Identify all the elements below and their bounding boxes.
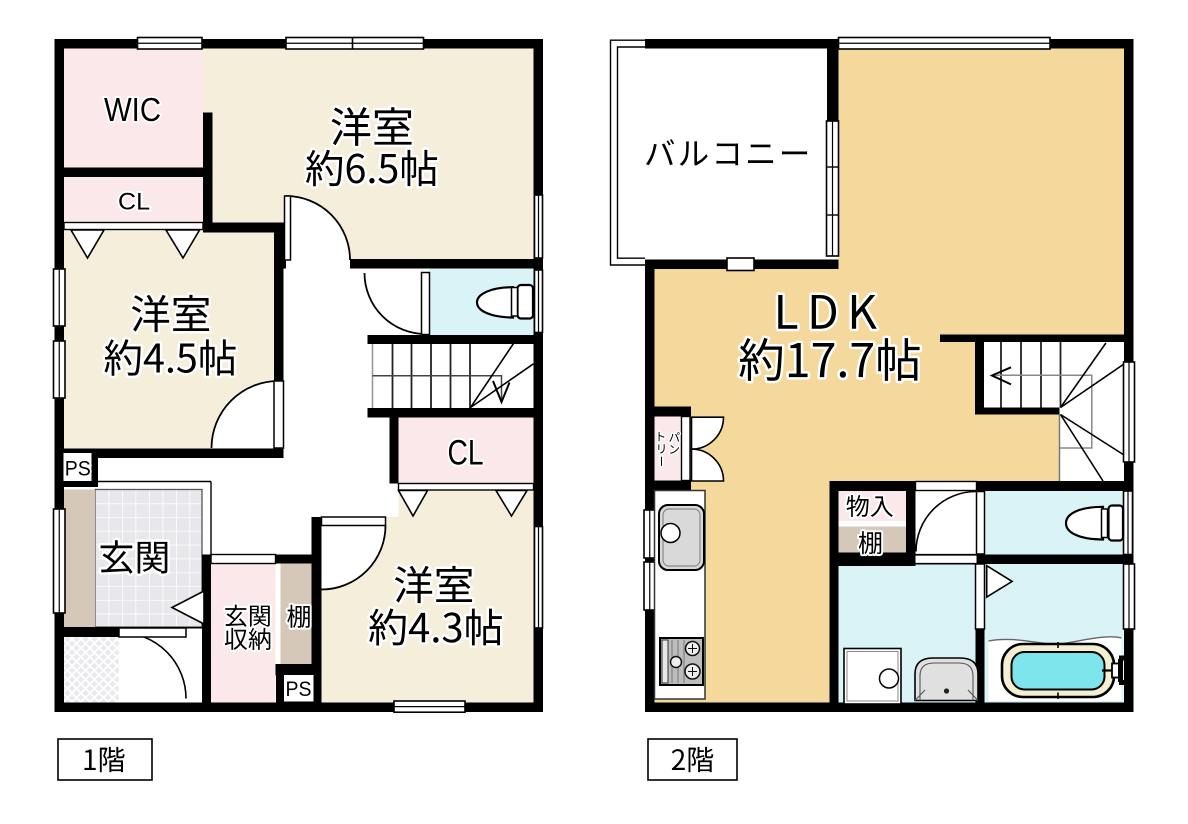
- svg-text:PS: PS: [286, 677, 312, 701]
- svg-text:CL: CL: [118, 190, 150, 216]
- svg-text:CL: CL: [448, 433, 484, 472]
- svg-text:PS: PS: [65, 457, 91, 481]
- svg-text:WIC: WIC: [104, 92, 161, 129]
